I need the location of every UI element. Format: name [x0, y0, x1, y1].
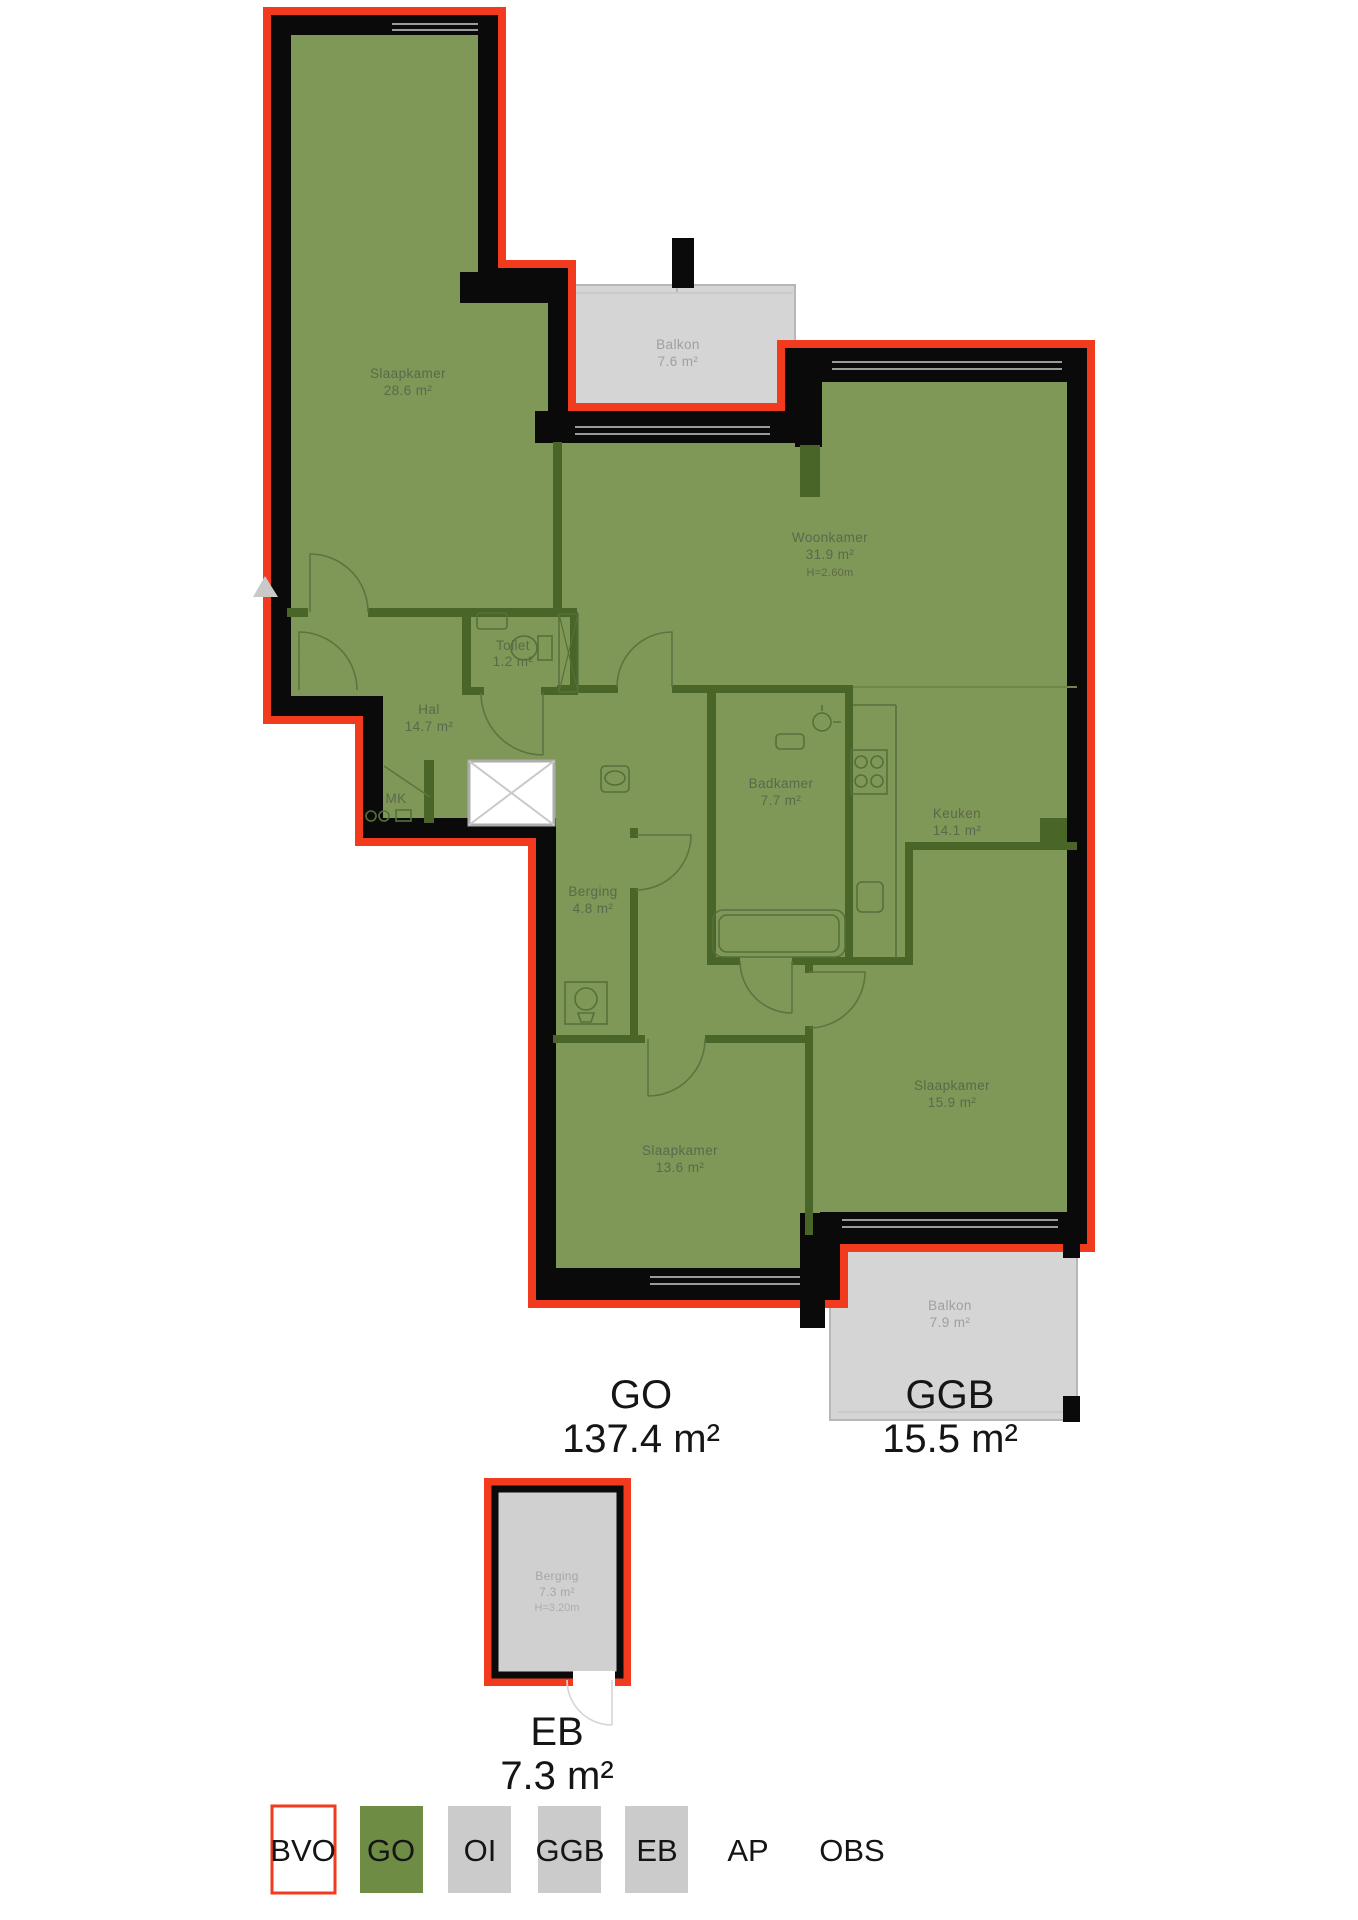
label-eb-area: 7.3 m²: [539, 1585, 575, 1599]
legend-label-ap: AP: [727, 1833, 768, 1868]
area-summary: GO 137.4 m² GGB 15.5 m²: [562, 1373, 1018, 1461]
label-balcony2-area: 7.9 m²: [930, 1315, 971, 1330]
label-bedroom2-name: Slaapkamer: [642, 1143, 718, 1158]
label-bedroom1-name: Slaapkamer: [370, 366, 446, 381]
label-toilet-name: Toilet: [496, 638, 530, 653]
label-livingroom-area: 31.9 m²: [806, 547, 855, 562]
summary-eb-label: EB: [530, 1710, 583, 1754]
legend-label-bvo: BVO: [270, 1833, 335, 1868]
legend-label-eb: EB: [636, 1833, 677, 1868]
label-toilet-area: 1.2 m²: [493, 654, 534, 669]
summary-go-value: 137.4 m²: [562, 1417, 720, 1461]
label-eb-height: H=3.20m: [535, 1602, 580, 1614]
label-bedroom3-area: 15.9 m²: [928, 1095, 977, 1110]
summary-ggb-label: GGB: [906, 1373, 995, 1417]
legend-label-obs: OBS: [819, 1833, 884, 1868]
label-balcony1-area: 7.6 m²: [658, 354, 699, 369]
label-bathroom-name: Badkamer: [749, 776, 814, 791]
floorplan-canvas: Slaapkamer 28.6 m² Balkon 7.6 m² Woonkam…: [0, 0, 1358, 1920]
label-livingroom-name: Woonkamer: [792, 530, 868, 545]
label-kitchen-name: Keuken: [933, 806, 981, 821]
label-eb-name: Berging: [535, 1569, 578, 1583]
label-storage-area: 4.8 m²: [573, 901, 614, 916]
label-bedroom3-name: Slaapkamer: [914, 1078, 990, 1093]
label-hall-area: 14.7 m²: [405, 719, 454, 734]
summary-ggb-value: 15.5 m²: [882, 1417, 1018, 1461]
label-storage-name: Berging: [568, 884, 617, 899]
label-balcony2-name: Balkon: [928, 1298, 972, 1313]
legend-label-go: GO: [367, 1833, 415, 1868]
label-balcony1-name: Balkon: [656, 337, 700, 352]
balcony-top-floor: [558, 285, 795, 421]
summary-eb-value: 7.3 m²: [500, 1754, 613, 1798]
summary-go-label: GO: [610, 1373, 672, 1417]
legend-label-oi: OI: [464, 1833, 497, 1868]
eb-door-gap: [573, 1671, 615, 1687]
label-bedroom1-area: 28.6 m²: [384, 383, 433, 398]
label-livingroom-height: H=2.60m: [806, 567, 853, 579]
legend: BVO GO OI GGB EB AP OBS: [270, 1806, 884, 1893]
label-bathroom-area: 7.7 m²: [761, 793, 802, 808]
label-kitchen-area: 14.1 m²: [933, 823, 982, 838]
label-bedroom2-area: 13.6 m²: [656, 1160, 705, 1175]
external-storage-unit: Berging 7.3 m² H=3.20m EB 7.3 m²: [489, 1483, 626, 1798]
label-meter-closet: MK: [385, 791, 406, 806]
shaft-large: [469, 761, 554, 825]
legend-label-ggb: GGB: [536, 1833, 605, 1868]
label-hall-name: Hal: [418, 702, 439, 717]
